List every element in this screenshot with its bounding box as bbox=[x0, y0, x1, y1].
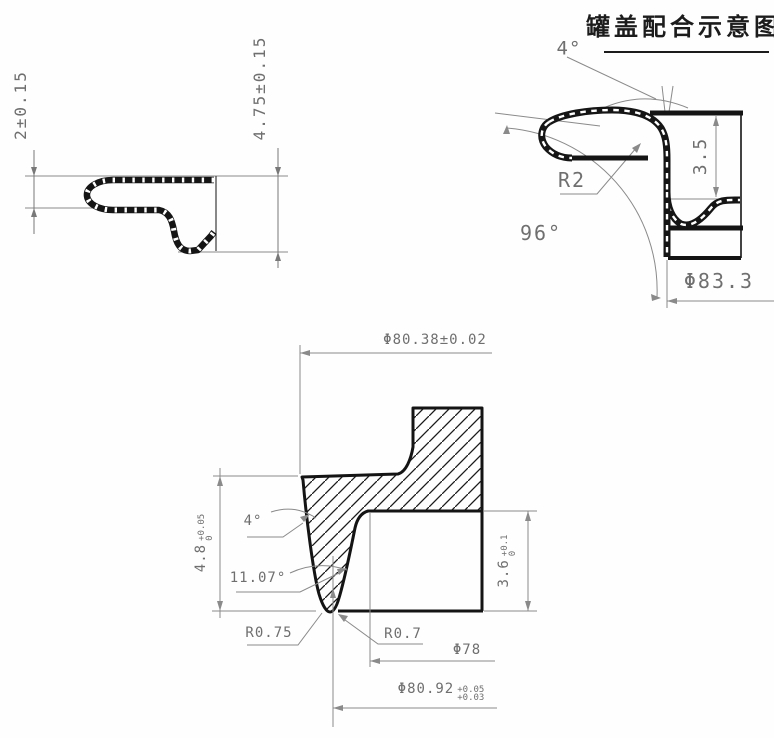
groove-diameter-tolerance: +0.05+0.03 bbox=[457, 686, 484, 702]
lid-profile-view bbox=[25, 148, 288, 268]
die-pocket-lines bbox=[338, 509, 483, 611]
label-curl-height: 2±0.15 bbox=[13, 70, 29, 140]
label-corner-radius: R0.7 bbox=[384, 627, 422, 641]
tol-lower: +0.03 bbox=[457, 694, 484, 702]
dim-groove-depth bbox=[212, 468, 316, 618]
tol-lower: 0 bbox=[509, 535, 517, 557]
label-chuck-angle: 4° bbox=[557, 40, 582, 59]
dim-curl-height bbox=[31, 150, 37, 234]
label-total-height: 4.75±0.15 bbox=[252, 36, 268, 141]
die-section-outline bbox=[302, 408, 482, 612]
label-step-depth: 3.6+0.10 bbox=[497, 535, 517, 588]
label-top-diameter: Φ80.38±0.02 bbox=[383, 333, 487, 347]
die-section-view bbox=[212, 345, 537, 727]
page-title: 罐盖配合示意图 bbox=[586, 15, 774, 39]
label-inner-diameter: Φ78 bbox=[453, 643, 481, 657]
label-wall-angle: 4° bbox=[244, 514, 263, 528]
lid-profile-extension-lines bbox=[25, 176, 288, 252]
dim-chuck-angle-leader bbox=[567, 57, 688, 112]
chuck-body-lines bbox=[572, 113, 743, 258]
label-curl-radius: R2 bbox=[558, 170, 586, 190]
dim-groove-diameter bbox=[333, 705, 497, 711]
die-dimensions bbox=[212, 345, 537, 727]
dim-seam-angle bbox=[495, 113, 661, 301]
groove-depth-value: 4.8 bbox=[193, 544, 209, 572]
label-tip-radius: R0.75 bbox=[245, 626, 292, 640]
label-flank-angle: 11.07° bbox=[230, 571, 287, 585]
label-chuck-diameter: Φ83.3 bbox=[684, 271, 754, 291]
tol-lower: 0 bbox=[206, 514, 214, 541]
lid-band bbox=[87, 180, 214, 251]
dim-total-height bbox=[275, 148, 281, 268]
label-seam-angle: 96° bbox=[520, 223, 562, 243]
label-groove-depth: 4.8+0.050 bbox=[194, 514, 214, 572]
engineering-drawing-canvas: 2±0.15 4.75±0.15 罐盖配合示意图 4° R2 3.5 96° Φ… bbox=[0, 0, 774, 738]
step-depth-tolerance: +0.10 bbox=[501, 535, 517, 557]
groove-depth-tolerance: +0.050 bbox=[198, 514, 214, 541]
label-groove-diameter: Φ80.92+0.05+0.03 bbox=[398, 682, 485, 702]
groove-diameter-value: Φ80.92 bbox=[398, 681, 455, 697]
label-countersink-depth: 3.5 bbox=[692, 137, 710, 176]
step-depth-value: 3.6 bbox=[496, 559, 512, 587]
